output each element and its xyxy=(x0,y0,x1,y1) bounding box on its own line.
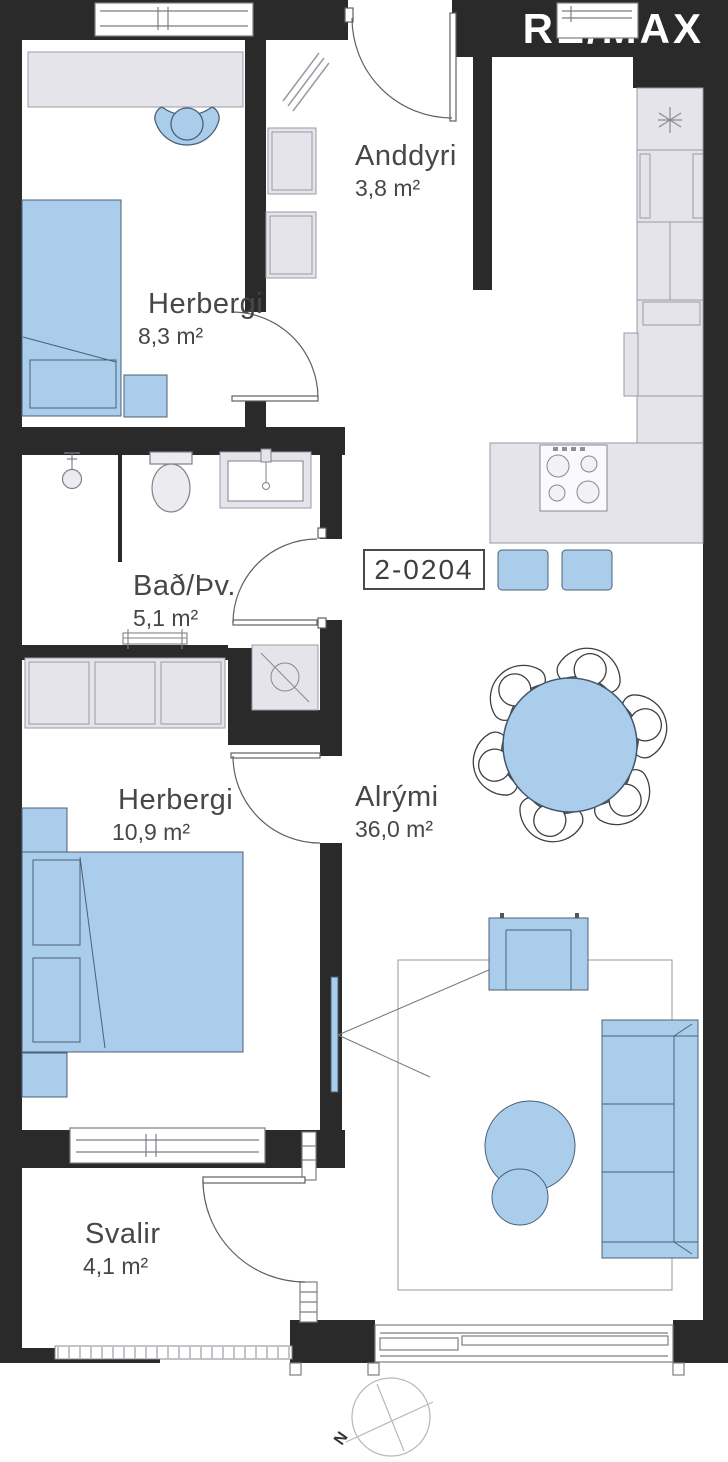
window-balcony-side xyxy=(300,1132,317,1322)
nightstand xyxy=(22,808,67,852)
double-bed xyxy=(22,852,243,1052)
nightstand xyxy=(124,375,167,417)
window-kitchen-top xyxy=(557,3,638,38)
unit-number: 2-0204 xyxy=(374,554,473,586)
shower-icon xyxy=(63,453,82,489)
sofa xyxy=(602,1020,698,1258)
entrance-door xyxy=(345,8,456,121)
bar-stools xyxy=(498,550,612,590)
floor-plan: RE/MAX xyxy=(0,0,728,1462)
desk xyxy=(28,52,243,107)
window-bedroom1-top xyxy=(95,3,253,36)
bedroom2-door xyxy=(231,753,320,843)
room-area: 3,8 m² xyxy=(355,175,457,201)
dining-table xyxy=(503,678,637,812)
towel-radiator xyxy=(123,629,187,649)
room-name: Herbergi xyxy=(148,288,263,321)
single-bed xyxy=(22,200,121,416)
window-bedroom2-bottom xyxy=(70,1128,265,1163)
room-area: 36,0 m² xyxy=(355,816,439,842)
stove-icon xyxy=(540,445,607,511)
mirror-icon xyxy=(283,53,329,111)
entry-closet xyxy=(266,128,316,278)
room-name: Alrými xyxy=(355,781,439,814)
compass-icon xyxy=(346,1378,433,1456)
room-name: Anddyri xyxy=(355,140,457,173)
room-name: Svalir xyxy=(85,1218,161,1251)
coffee-tables xyxy=(485,1101,575,1225)
room-label-svalir: Svalir 4,1 m² xyxy=(83,1218,161,1279)
room-label-herbergi1: Herbergi 8,3 m² xyxy=(138,288,263,349)
room-area: 10,9 m² xyxy=(112,819,233,845)
room-name: Bað/Þv. xyxy=(133,570,236,603)
bathroom-door xyxy=(233,528,326,628)
room-name: Herbergi xyxy=(118,784,233,817)
room-label-herbergi2: Herbergi 10,9 m² xyxy=(112,784,233,845)
room-label-bad: Bað/Þv. 5,1 m² xyxy=(133,570,236,631)
room-area: 4,1 m² xyxy=(83,1253,161,1279)
sink-vanity xyxy=(220,449,311,508)
room-label-anddyri: Anddyri 3,8 m² xyxy=(355,140,457,201)
balcony-door xyxy=(203,1177,305,1282)
balcony-railing xyxy=(55,1346,292,1359)
room-area: 5,1 m² xyxy=(133,605,236,631)
armchair xyxy=(489,913,588,990)
unit-number-box: 2-0204 xyxy=(363,549,485,590)
room-area: 8,3 m² xyxy=(138,323,263,349)
wardrobe xyxy=(25,658,225,728)
toilet-icon xyxy=(150,452,192,512)
washing-machine-icon xyxy=(252,645,318,710)
nightstand xyxy=(22,1053,67,1097)
desk-chair xyxy=(155,107,219,145)
window-living-bottom xyxy=(290,1325,684,1375)
room-label-alrymi: Alrými 36,0 m² xyxy=(355,781,439,842)
